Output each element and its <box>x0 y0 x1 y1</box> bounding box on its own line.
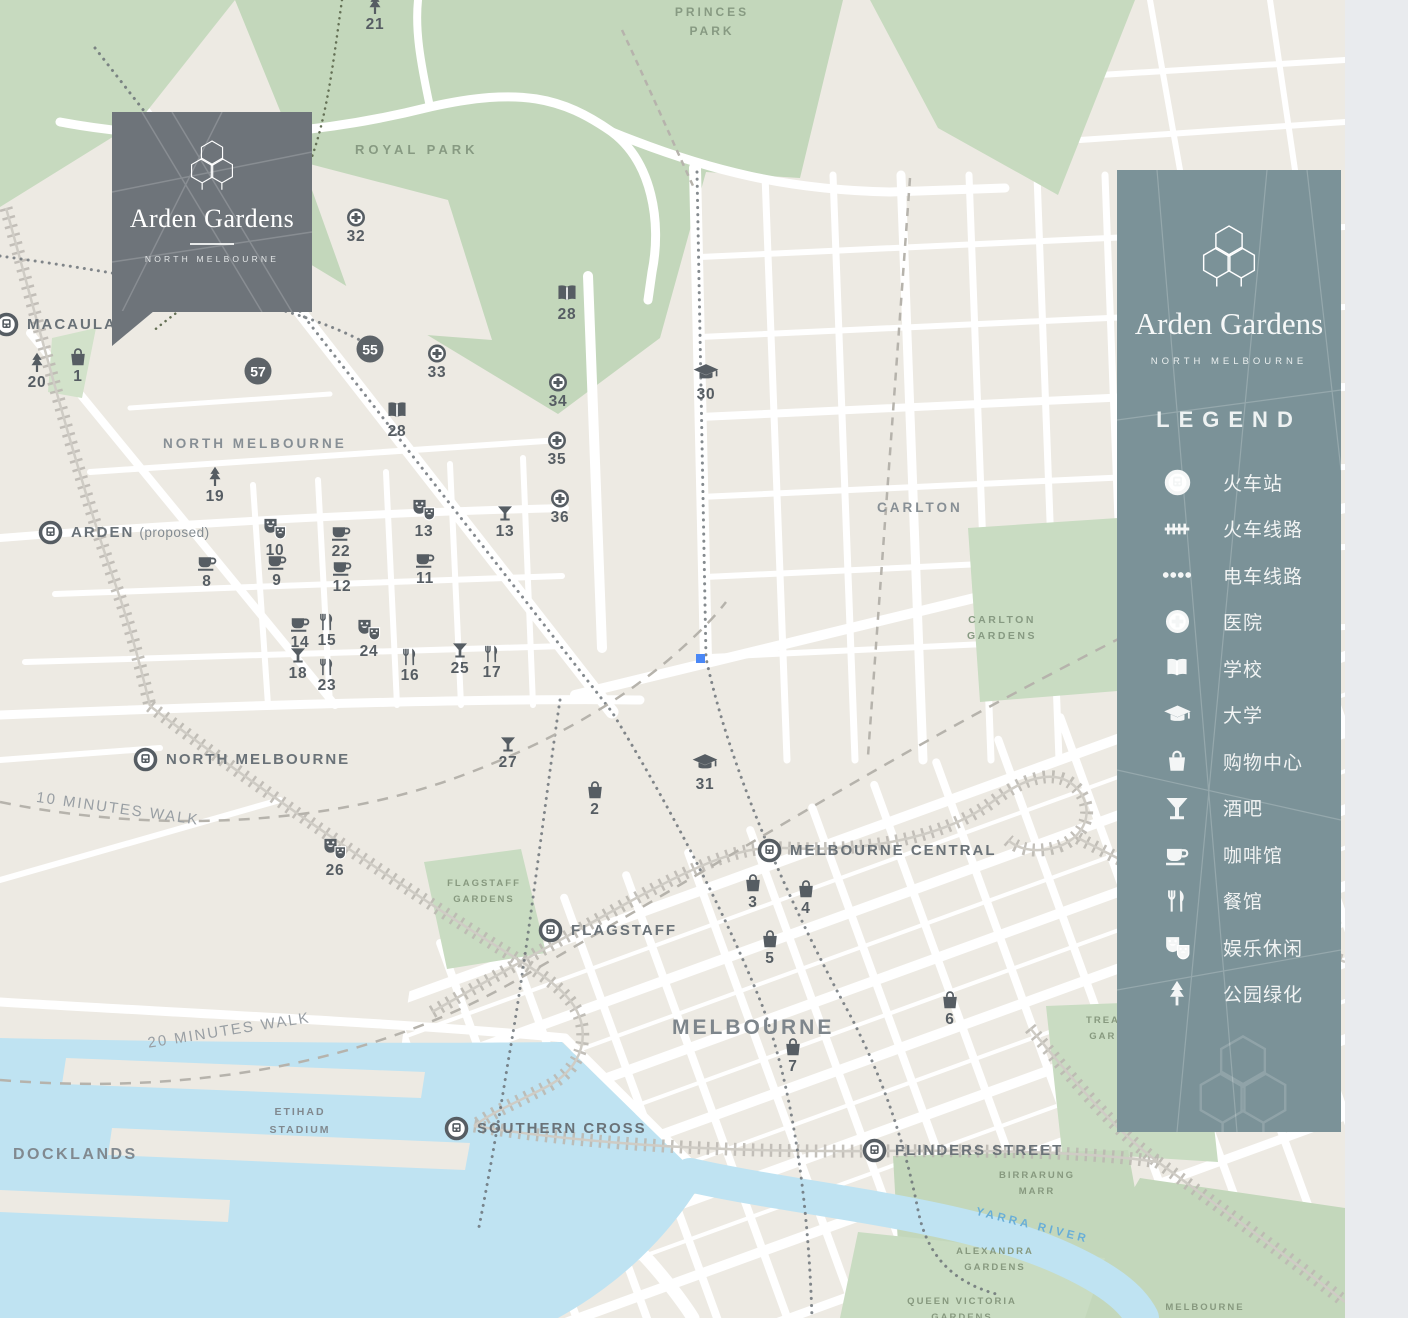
badge-pointer <box>112 311 158 347</box>
cafe-icon <box>266 549 289 572</box>
map-label: PRINCES PARK <box>675 3 749 40</box>
cafe-poi: 9 <box>266 549 289 591</box>
shopping-icon <box>782 1036 804 1058</box>
map-label: ALEXANDRA GARDENS <box>956 1244 1034 1276</box>
poi-number: 16 <box>401 667 420 686</box>
poi-number: 6 <box>945 1011 954 1030</box>
poi-number: 23 <box>318 677 337 696</box>
legend-label: 娱乐休闲 <box>1223 934 1303 961</box>
poi-number: 35 <box>548 451 567 470</box>
badge-divider <box>190 243 234 245</box>
bar-poi: 25 <box>450 640 470 679</box>
arden-gardens-logo-icon <box>1193 222 1265 292</box>
entertainment-icon <box>356 616 383 643</box>
university-poi: 30 <box>693 359 720 405</box>
badge-title: Arden Gardens <box>130 204 295 234</box>
tram-route-badge: 55 <box>357 336 384 363</box>
legend-label: 医院 <box>1223 608 1263 635</box>
cafe-poi: 12 <box>331 555 354 597</box>
shopping-poi: 1 <box>67 346 89 387</box>
restaurant-poi: 17 <box>482 644 502 683</box>
school-icon <box>385 398 410 423</box>
map-label: YARRA RIVER <box>974 1204 1091 1249</box>
map-label: MELBOURNE <box>1165 1300 1244 1316</box>
badge-subtitle: NORTH MELBOURNE <box>145 254 279 264</box>
station-icon <box>133 747 158 772</box>
bar-icon <box>288 645 308 665</box>
cafe-icon <box>330 520 353 543</box>
restaurant-poi: 16 <box>400 647 420 686</box>
legend-row-restaurant: 餐馆 <box>1117 878 1341 925</box>
map-label: BIRRARUNG MARR <box>999 1168 1075 1200</box>
bar-poi: 13 <box>495 503 515 542</box>
park-poi: 20 <box>26 352 48 393</box>
shopping-icon <box>584 779 606 801</box>
map-page: 2132283312034302835193613131022981211141… <box>0 0 1408 1318</box>
poi-number: 24 <box>360 643 379 662</box>
shopping-icon <box>67 346 89 368</box>
station-icon <box>757 838 782 863</box>
shopping-poi: 6 <box>939 989 961 1030</box>
university-poi: 31 <box>692 749 719 795</box>
map-label: 20 MINUTES WALK <box>146 1006 312 1055</box>
station-icon <box>0 312 19 337</box>
legend-label: 火车站 <box>1223 469 1283 496</box>
city-map: 2132283312034302835193613131022981211141… <box>0 0 1345 1318</box>
poi-number: 30 <box>697 386 716 405</box>
map-label: ETIHAD STADIUM <box>269 1104 330 1140</box>
cafe-icon <box>1163 840 1191 868</box>
hospital-icon <box>427 343 448 364</box>
poi-number: 17 <box>483 664 502 683</box>
hospital-icon <box>547 430 568 451</box>
station-melbourne-central: MELBOURNE CENTRAL <box>757 838 997 863</box>
page-margin <box>1345 0 1408 1318</box>
station-icon <box>1164 469 1191 496</box>
restaurant-icon <box>400 647 420 667</box>
cafe-icon <box>414 547 437 570</box>
poi-number: 2 <box>590 801 599 820</box>
poi-number: 28 <box>558 306 577 325</box>
poi-number: 5 <box>765 950 774 969</box>
restaurant-poi: 23 <box>317 657 337 696</box>
station-icon <box>38 520 63 545</box>
station-label: FLAGSTAFF <box>571 922 677 939</box>
cafe-poi: 11 <box>414 547 437 589</box>
bar-poi: 18 <box>288 645 308 684</box>
school-icon <box>1163 654 1191 682</box>
map-label: NORTH MELBOURNE <box>163 434 347 455</box>
cafe-poi: 8 <box>196 550 219 592</box>
school-poi: 28 <box>555 281 580 325</box>
tram-line-icon <box>1162 560 1192 590</box>
hospital-poi: 32 <box>346 207 367 247</box>
poi-number: 12 <box>333 578 352 597</box>
map-label: ROYAL PARK <box>355 140 479 160</box>
restaurant-icon <box>482 644 502 664</box>
rail-line-icon <box>1163 515 1191 543</box>
map-label: 10 MINUTES WALK <box>35 786 201 832</box>
legend-label: 购物中心 <box>1223 748 1303 775</box>
map-label: FLAGSTAFF GARDENS <box>447 876 521 908</box>
park-icon <box>204 466 226 488</box>
legend-title: LEGEND <box>1156 407 1302 433</box>
poi-number: 4 <box>801 900 810 919</box>
hospital-icon <box>548 372 569 393</box>
shopping-icon <box>742 872 764 894</box>
restaurant-icon <box>317 612 337 632</box>
map-label: CARLTON <box>877 498 963 519</box>
poi-number: 33 <box>428 364 447 383</box>
station-label: FLINDERS STREET <box>895 1142 1063 1159</box>
university-icon <box>1163 700 1192 729</box>
legend-label: 酒吧 <box>1223 794 1263 821</box>
poi-number: 31 <box>696 776 715 795</box>
station-southern-cross: SOUTHERN CROSS <box>444 1116 647 1141</box>
station-macaulay: MACAULAY <box>0 312 127 337</box>
station-icon <box>538 918 563 943</box>
legend-label: 学校 <box>1223 655 1263 682</box>
poi-number: 11 <box>416 570 434 589</box>
hospital-icon <box>346 207 367 228</box>
station-flagstaff: FLAGSTAFF <box>538 918 677 943</box>
park-icon <box>26 352 48 374</box>
park-icon <box>1159 980 1195 1008</box>
poi-number: 19 <box>206 488 225 507</box>
legend-label: 火车线路 <box>1223 515 1303 542</box>
legend-row-station: 火车站 <box>1117 459 1341 506</box>
bar-icon <box>495 503 515 523</box>
hospital-poi: 34 <box>548 372 569 412</box>
entertainment-poi: 13 <box>411 496 438 542</box>
poi-number: 13 <box>496 523 515 542</box>
bar-icon <box>1159 793 1195 823</box>
map-label: MELBOURNE <box>672 1012 834 1045</box>
university-icon <box>692 749 719 776</box>
poi-number: 7 <box>788 1058 797 1077</box>
restaurant-icon <box>1164 888 1190 914</box>
shopping-poi: 4 <box>795 878 817 919</box>
station-arden: ARDEN(proposed) <box>38 520 210 545</box>
entertainment-icon <box>322 835 349 862</box>
park-poi: 19 <box>204 466 226 507</box>
legend-row-school: 学校 <box>1117 645 1341 692</box>
poi-number: 25 <box>451 660 470 679</box>
entertainment-icon <box>1159 933 1195 962</box>
poi-number: 1 <box>73 368 82 387</box>
station-icon <box>444 1116 469 1141</box>
map-label: DOCKLANDS <box>13 1143 138 1168</box>
legend-label: 咖啡馆 <box>1223 841 1283 868</box>
legend-label: 餐馆 <box>1223 887 1263 914</box>
legend-row-park: 公园绿化 <box>1117 971 1341 1018</box>
poi-number: 18 <box>289 665 308 684</box>
restaurant-icon <box>317 657 337 677</box>
legend-row-rail-line: 火车线路 <box>1117 506 1341 553</box>
poi-number: 21 <box>366 16 385 35</box>
map-label: CARLTON GARDENS <box>967 612 1037 645</box>
station-icon <box>862 1138 887 1163</box>
legend-panel: Arden Gardens NORTH MELBOURNE LEGEND 火车站… <box>1117 170 1341 1132</box>
poi-number: 28 <box>388 423 407 442</box>
legend-row-university: 大学 <box>1117 692 1341 739</box>
shopping-icon <box>759 928 781 950</box>
legend-label: 大学 <box>1223 701 1263 728</box>
legend-row-tram-line: 电车线路 <box>1117 552 1341 599</box>
shopping-icon <box>939 989 961 1011</box>
tram-line-icon <box>1159 560 1195 590</box>
bar-poi: 27 <box>498 734 518 773</box>
entertainment-icon <box>411 496 438 523</box>
poi-number: 32 <box>347 228 366 247</box>
hospital-icon <box>1164 608 1191 635</box>
poi-number: 8 <box>202 573 211 592</box>
poi-number: 27 <box>499 754 518 773</box>
cafe-icon <box>331 555 354 578</box>
panel-title: Arden Gardens <box>1135 306 1324 342</box>
shopping-poi: 5 <box>759 928 781 969</box>
poi-number: 26 <box>326 862 345 881</box>
shopping-poi: 3 <box>742 872 764 913</box>
arden-gardens-logo-icon <box>183 138 241 194</box>
bar-icon <box>498 734 518 754</box>
university-icon <box>1159 700 1195 729</box>
station-label: NORTH MELBOURNE <box>166 751 350 768</box>
legend-row-shopping: 购物中心 <box>1117 738 1341 785</box>
school-icon <box>555 281 580 306</box>
station-suffix: (proposed) <box>139 525 209 540</box>
park-icon <box>364 0 386 16</box>
legend-row-bar: 酒吧 <box>1117 785 1341 832</box>
restaurant-icon <box>1159 888 1195 914</box>
legend-label: 公园绿化 <box>1223 980 1303 1007</box>
station-north-melbourne: NORTH MELBOURNE <box>133 747 350 772</box>
poi-number: 9 <box>272 572 281 591</box>
hospital-poi: 33 <box>427 343 448 383</box>
entertainment-poi: 24 <box>356 616 383 662</box>
site-badge: Arden Gardens NORTH MELBOURNE <box>112 112 312 312</box>
map-label: QUEEN VICTORIA GARDENS <box>907 1294 1017 1318</box>
entertainment-poi: 26 <box>322 835 349 881</box>
restaurant-poi: 15 <box>317 612 337 651</box>
bar-icon <box>1162 793 1192 823</box>
hospital-poi: 35 <box>547 430 568 470</box>
cafe-icon <box>196 550 219 573</box>
poi-number: 20 <box>28 374 47 393</box>
station-flinders-street: FLINDERS STREET <box>862 1138 1063 1163</box>
legend-items: 火车站火车线路电车线路医院学校大学购物中心酒吧咖啡馆餐馆娱乐休闲公园绿化 <box>1117 459 1341 1017</box>
cafe-icon <box>289 611 312 634</box>
school-icon <box>1159 654 1195 682</box>
panel-subtitle: NORTH MELBOURNE <box>1151 356 1307 367</box>
tram-route-badge: 57 <box>245 358 272 385</box>
cursor-artifact <box>696 654 705 663</box>
cafe-icon <box>1159 840 1195 868</box>
bar-icon <box>450 640 470 660</box>
poi-number: 15 <box>318 632 337 651</box>
university-icon <box>693 359 720 386</box>
legend-row-hospital: 医院 <box>1117 599 1341 646</box>
legend-label: 电车线路 <box>1223 562 1303 589</box>
station-icon <box>1159 469 1195 496</box>
hospital-icon <box>550 488 571 509</box>
legend-row-entertainment: 娱乐休闲 <box>1117 924 1341 971</box>
hospital-poi: 36 <box>550 488 571 528</box>
legend-row-cafe: 咖啡馆 <box>1117 831 1341 878</box>
park-icon <box>1163 980 1191 1008</box>
poi-number: 36 <box>551 509 570 528</box>
shopping-icon <box>1159 748 1195 774</box>
shopping-icon <box>795 878 817 900</box>
shopping-poi: 2 <box>584 779 606 820</box>
shopping-poi: 7 <box>782 1036 804 1077</box>
shopping-icon <box>1164 748 1190 774</box>
poi-number: 3 <box>748 894 757 913</box>
station-label: MELBOURNE CENTRAL <box>790 842 997 859</box>
poi-number: 34 <box>549 393 568 412</box>
entertainment-icon <box>1163 933 1192 962</box>
station-label: ARDEN <box>71 524 134 541</box>
park-poi: 21 <box>364 0 386 35</box>
hospital-icon <box>1159 608 1195 635</box>
entertainment-icon <box>262 515 289 542</box>
poi-number: 13 <box>415 523 434 542</box>
station-label: SOUTHERN CROSS <box>477 1120 647 1137</box>
rail-line-icon <box>1159 515 1195 543</box>
school-poi: 28 <box>385 398 410 442</box>
